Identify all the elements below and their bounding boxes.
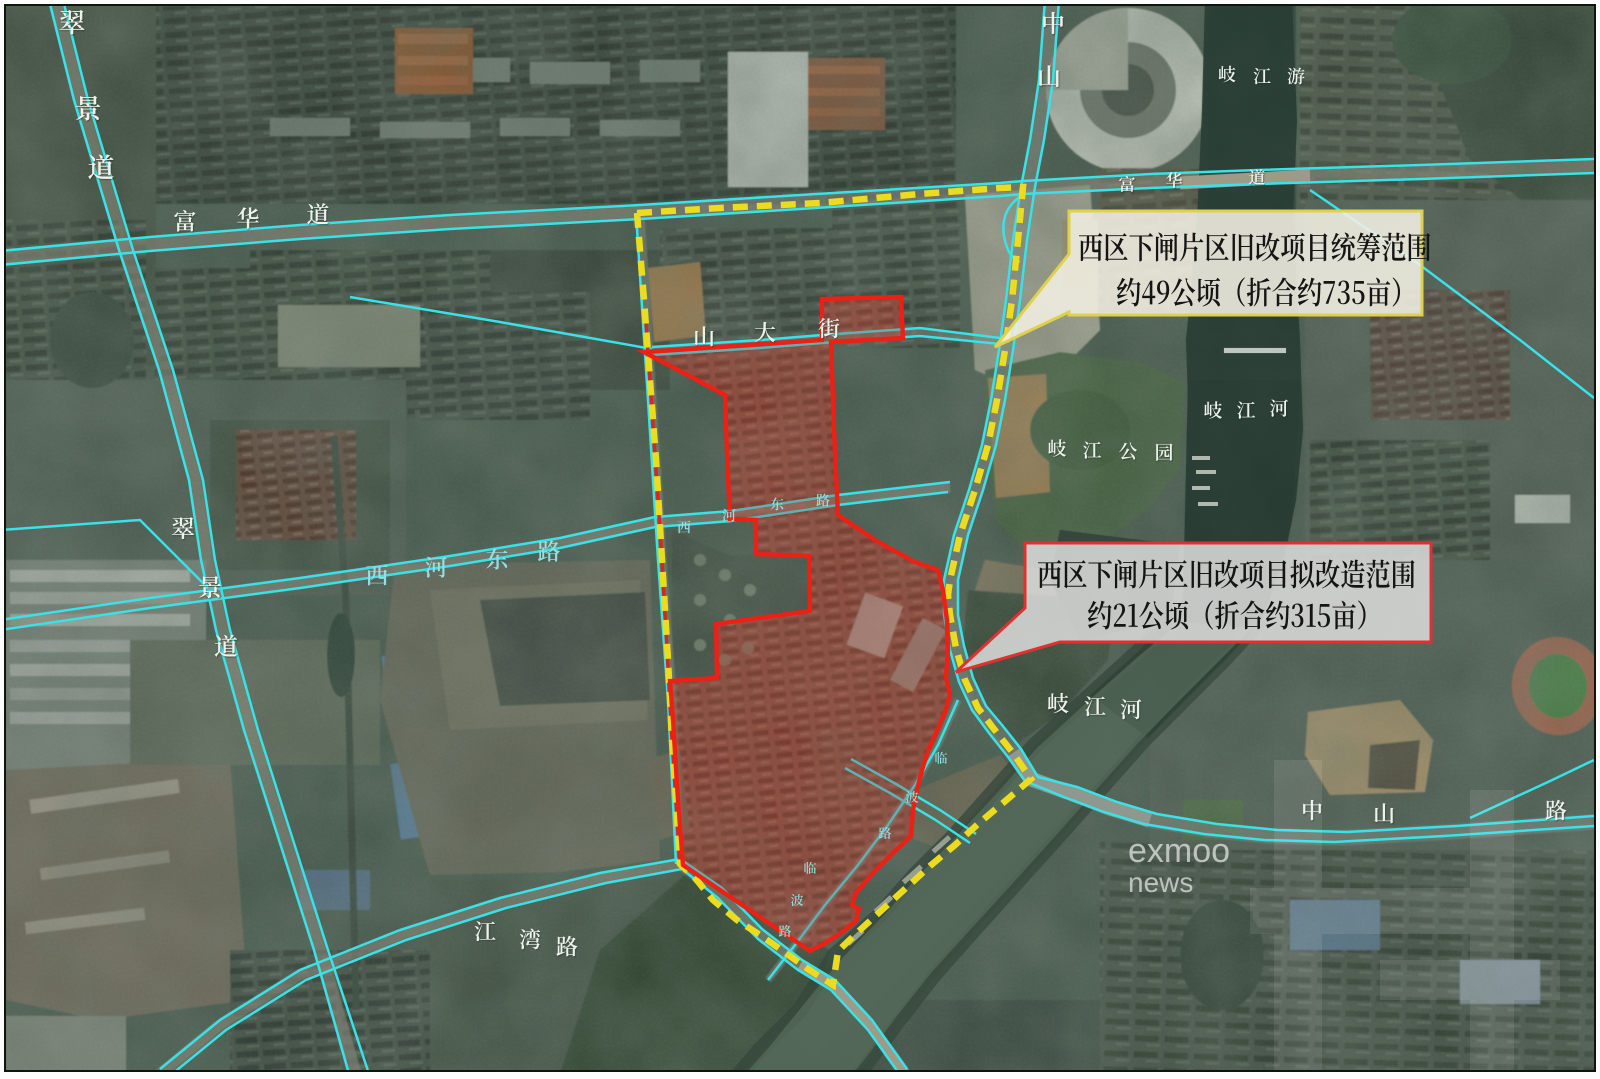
svg-text:news: news: [1128, 867, 1193, 898]
svg-text:exmoo: exmoo: [1128, 832, 1230, 870]
